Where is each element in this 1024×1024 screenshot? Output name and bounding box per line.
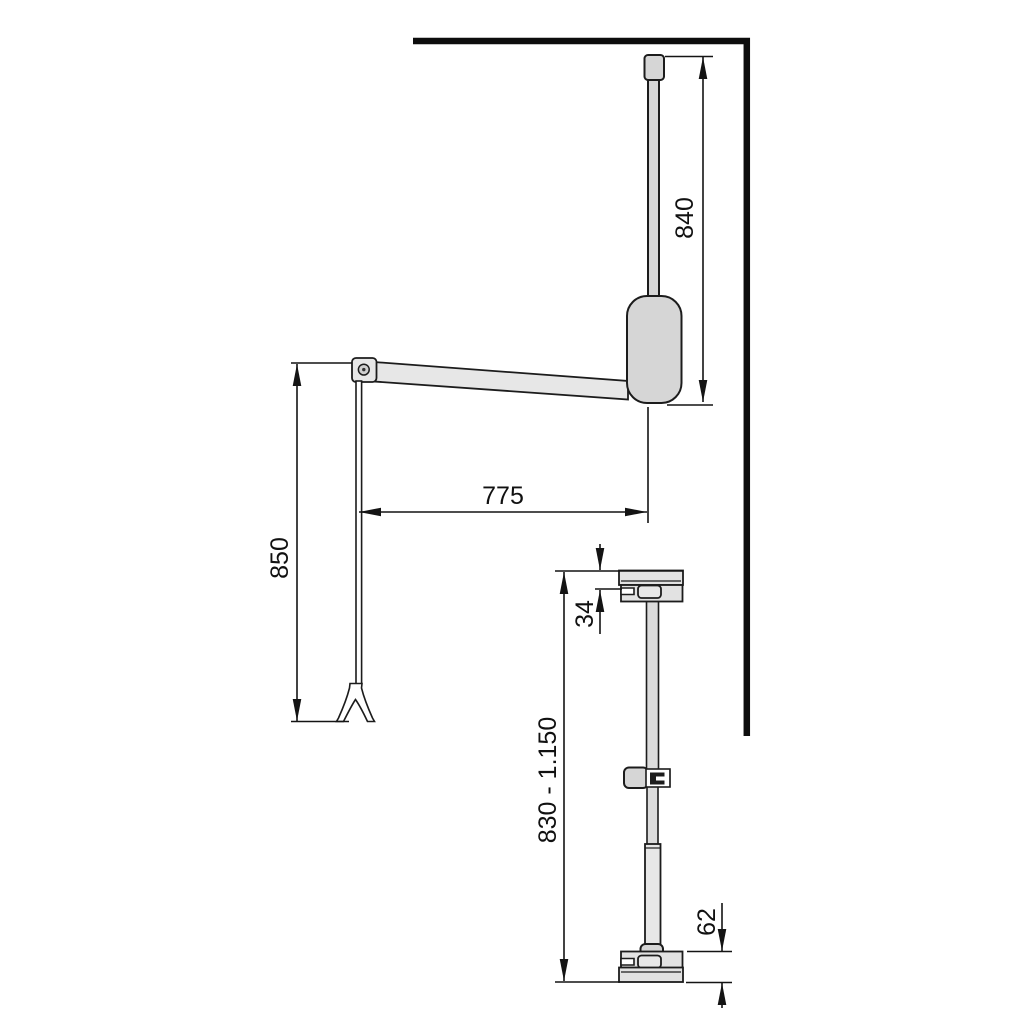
dimension-label-34: 34 (571, 600, 599, 628)
handle-fork (337, 684, 375, 722)
dimension-label-775: 775 (482, 482, 524, 510)
rail-tube-upper (647, 600, 659, 770)
arrowhead-down-icon (293, 699, 302, 721)
rail-tube-middle (647, 786, 658, 846)
dimension-label-830-1150: 830 - 1.150 (534, 717, 562, 844)
clamp-knob (624, 768, 648, 789)
lift-rod-cap (645, 55, 665, 80)
arrowhead-up-icon (718, 983, 727, 1005)
bottom-bracket-plate (619, 968, 683, 983)
hanger-rod (356, 381, 362, 684)
dimension-arm-reach: 775 (359, 407, 648, 523)
bracket-notch (621, 588, 634, 595)
dimension-label-840: 840 (671, 197, 699, 239)
arrowhead-up-icon (293, 364, 302, 386)
spring-body (627, 296, 682, 403)
dimension-label-850: 850 (266, 537, 294, 579)
wardrobe-lift-technical-drawing: 840 775 850 (0, 0, 1024, 1024)
bracket-notch (621, 959, 634, 966)
technical-drawing-page: 840 775 850 (0, 0, 1024, 1024)
belt-clamp (624, 768, 670, 789)
side-view: 34 830 - 1.150 62 (534, 544, 732, 1008)
dimension-adjustable-height: 830 - 1.150 (534, 572, 568, 981)
arrowhead-right-icon (625, 508, 647, 517)
rail-tube-lower (645, 844, 661, 952)
arrowhead-down-icon (560, 959, 569, 981)
dimension-bottom-bracket-height: 62 (686, 903, 732, 1008)
dimension-top-bracket-height: 34 (571, 544, 622, 634)
bottom-bracket-tab (638, 956, 661, 969)
arrowhead-down-icon (699, 380, 708, 402)
arrowhead-down-icon (596, 548, 605, 570)
support-arm (374, 362, 628, 400)
lift-rod (648, 77, 659, 299)
dimension-arm-drop: 850 (266, 363, 352, 722)
dimension-label-62: 62 (693, 908, 721, 936)
arrowhead-up-icon (560, 572, 569, 594)
pivot-bracket (352, 358, 377, 382)
top-mount-bracket (619, 571, 683, 602)
pivot-screw-center-icon (362, 368, 365, 371)
top-bracket-plate (619, 571, 683, 586)
top-bracket-tab (638, 586, 661, 599)
bottom-mount-bracket (619, 952, 683, 983)
arrowhead-up-icon (699, 57, 708, 79)
